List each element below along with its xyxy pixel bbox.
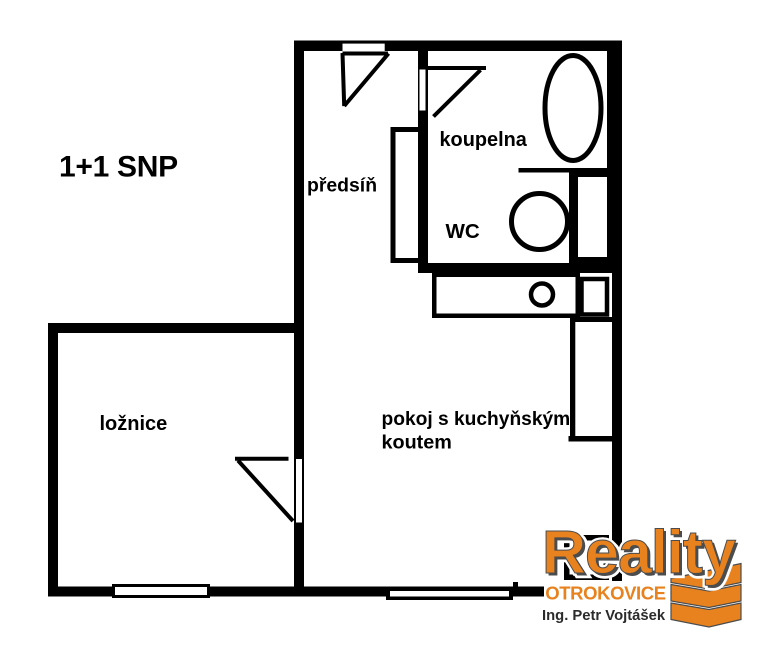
svg-text:ložnice: ložnice	[100, 413, 168, 435]
svg-text:Reality: Reality	[542, 518, 736, 586]
svg-text:koupelna: koupelna	[440, 129, 528, 151]
svg-text:WC: WC	[446, 220, 480, 243]
svg-text:Ing. Petr Vojtášek: Ing. Petr Vojtášek	[542, 608, 666, 624]
svg-text:koutem: koutem	[382, 431, 452, 453]
svg-text:1+1 SNP: 1+1 SNP	[59, 151, 178, 184]
svg-text:OTROKOVICE: OTROKOVICE	[545, 583, 665, 604]
svg-text:pokoj s kuchyňským: pokoj s kuchyňským	[382, 409, 571, 430]
svg-text:předsíň: předsíň	[307, 175, 377, 197]
